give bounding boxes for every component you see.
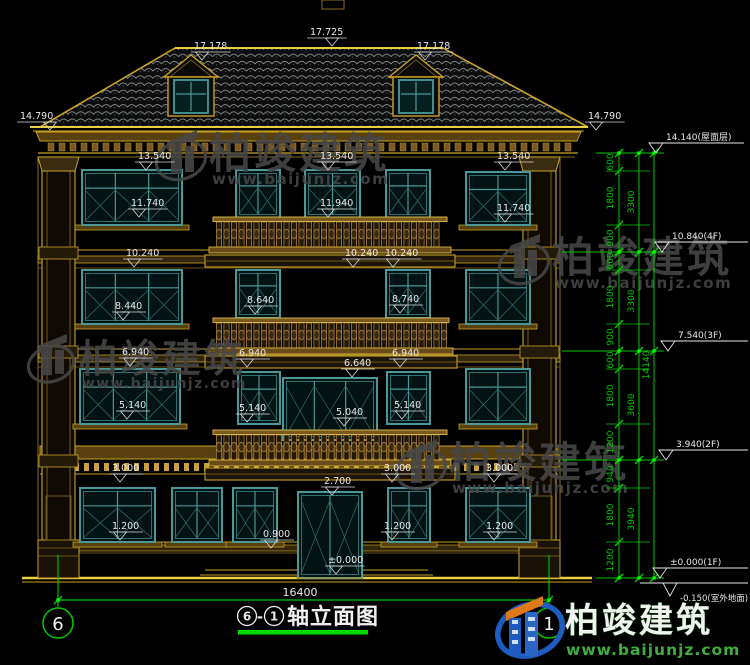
svg-text:600: 600 [606, 252, 616, 269]
svg-text:3300: 3300 [627, 289, 637, 312]
svg-text:1200: 1200 [606, 548, 616, 571]
svg-text:1: 1 [543, 614, 554, 635]
svg-text:6: 6 [243, 610, 251, 624]
svg-text:6.940: 6.940 [239, 348, 266, 359]
svg-text:16400: 16400 [283, 586, 318, 599]
svg-text:600: 600 [606, 351, 616, 368]
svg-text:www.baijunjz.com: www.baijunjz.com [555, 274, 732, 292]
svg-text:柏竣建筑: 柏竣建筑 [565, 601, 713, 641]
svg-text:www.baijunjz.com: www.baijunjz.com [82, 376, 247, 392]
svg-text:www.baijunjz.com: www.baijunjz.com [212, 170, 389, 188]
svg-text:11.940: 11.940 [320, 198, 353, 209]
svg-text:17.725: 17.725 [310, 27, 343, 38]
svg-text:1800: 1800 [606, 503, 616, 526]
cad-sheet: 柏竣建筑www.baijunjz.com柏竣建筑www.baijunjz.com… [0, 0, 750, 665]
svg-text:10.240: 10.240 [126, 248, 159, 259]
window [381, 488, 437, 547]
svg-text:3300: 3300 [627, 190, 637, 213]
svg-text:17.178: 17.178 [194, 41, 227, 52]
svg-text:1800: 1800 [606, 186, 616, 209]
window [165, 488, 229, 547]
elevation-drawing: 柏竣建筑www.baijunjz.com柏竣建筑www.baijunjz.com… [0, 0, 750, 665]
svg-text:-: - [257, 608, 263, 626]
watermark: 柏竣建筑www.baijunjz.com [151, 129, 389, 188]
svg-text:6.640: 6.640 [344, 358, 371, 369]
svg-text:1200: 1200 [606, 430, 616, 453]
svg-text:14.790: 14.790 [588, 111, 621, 122]
svg-text:14140: 14140 [642, 350, 652, 379]
svg-text:0.900: 0.900 [263, 529, 290, 540]
svg-text:6: 6 [52, 614, 63, 635]
svg-text:6.940: 6.940 [392, 348, 419, 359]
svg-text:3.000: 3.000 [112, 463, 139, 474]
window [386, 170, 430, 218]
svg-text:1.200: 1.200 [384, 521, 411, 532]
svg-text:13.540: 13.540 [497, 151, 530, 162]
svg-text:11.740: 11.740 [131, 198, 164, 209]
svg-text:14.790: 14.790 [20, 111, 53, 122]
svg-text:5.140: 5.140 [119, 400, 146, 411]
svg-text:3.940(2F): 3.940(2F) [676, 440, 720, 450]
svg-text:1.200: 1.200 [486, 521, 513, 532]
svg-text:www.baijunjz.com: www.baijunjz.com [566, 641, 740, 659]
svg-text:2.700: 2.700 [324, 476, 351, 487]
window [459, 270, 537, 329]
window [75, 270, 189, 329]
svg-text:600: 600 [606, 153, 616, 170]
svg-text:10.840(4F): 10.840(4F) [672, 232, 721, 242]
svg-text:7.540(3F): 7.540(3F) [678, 331, 722, 341]
svg-text:940: 940 [606, 465, 616, 482]
svg-text:8.640: 8.640 [247, 295, 274, 306]
svg-text:8.440: 8.440 [115, 301, 142, 312]
svg-text:±0.000: ±0.000 [328, 555, 363, 566]
svg-text:5.140: 5.140 [239, 403, 266, 414]
window [73, 488, 162, 547]
window [459, 369, 537, 429]
svg-text:3.000: 3.000 [384, 463, 411, 474]
svg-text:3600: 3600 [627, 393, 637, 416]
svg-text:5.040: 5.040 [336, 407, 363, 418]
svg-text:10.240: 10.240 [385, 248, 418, 259]
svg-text:轴立面图: 轴立面图 [287, 604, 379, 630]
svg-text:www.baijunjz.com: www.baijunjz.com [452, 479, 629, 497]
window [387, 372, 430, 424]
svg-text:3.000: 3.000 [486, 463, 513, 474]
svg-text:5.140: 5.140 [394, 400, 421, 411]
svg-text:17.178: 17.178 [417, 41, 450, 52]
svg-text:900: 900 [606, 229, 616, 246]
svg-text:13.540: 13.540 [320, 151, 353, 162]
svg-text:1800: 1800 [606, 384, 616, 407]
svg-text:11.740: 11.740 [497, 203, 530, 214]
svg-text:1: 1 [270, 610, 278, 624]
svg-text:14.140(屋面层): 14.140(屋面层) [666, 132, 732, 143]
window [459, 172, 537, 230]
svg-text:1800: 1800 [606, 285, 616, 308]
svg-text:6.940: 6.940 [122, 347, 149, 358]
svg-text:3940: 3940 [627, 507, 637, 530]
svg-text:900: 900 [606, 328, 616, 345]
svg-text:10.240: 10.240 [345, 248, 378, 259]
svg-text:1.200: 1.200 [112, 521, 139, 532]
svg-text:13.540: 13.540 [138, 151, 171, 162]
svg-text:±0.000(1F): ±0.000(1F) [670, 558, 721, 568]
brand-logo: 柏竣建筑www.baijunjz.com [490, 595, 740, 665]
svg-text:8.740: 8.740 [392, 294, 419, 305]
